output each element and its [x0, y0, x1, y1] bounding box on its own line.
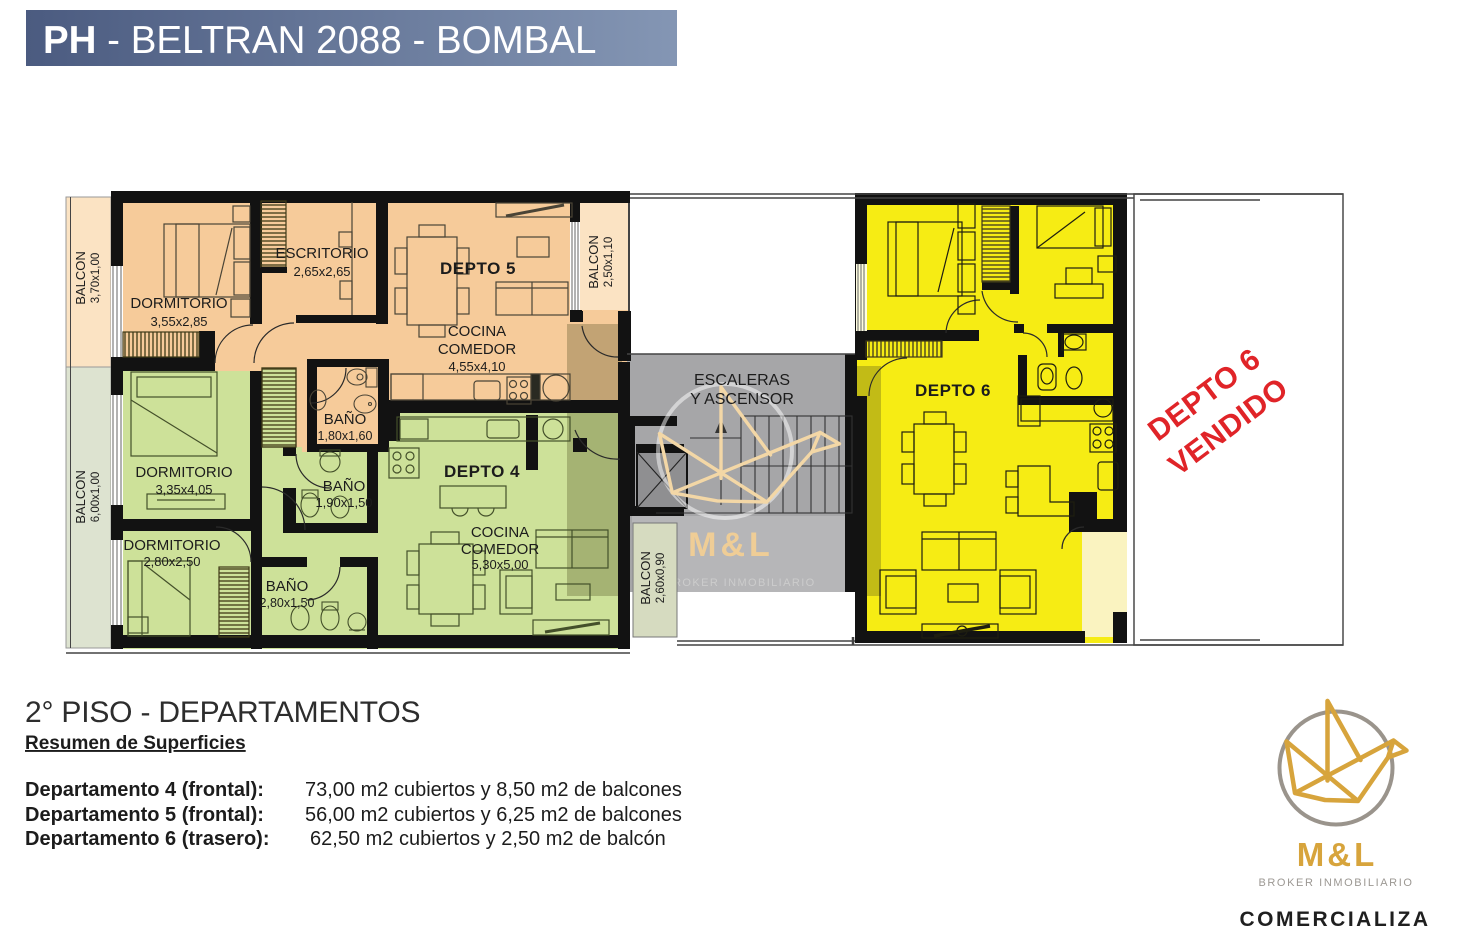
svg-text:M&L: M&L	[688, 526, 774, 564]
svg-text:DORMITORIO: DORMITORIO	[135, 464, 232, 481]
svg-text:6,00x1,00: 6,00x1,00	[90, 472, 102, 523]
svg-text:1,90x1,50: 1,90x1,50	[315, 495, 372, 510]
svg-text:DORMITORIO: DORMITORIO	[130, 295, 227, 312]
svg-text:62,50 m2 cubiertos y 2,50 m2 d: 62,50 m2 cubiertos y 2,50 m2 de balcón	[310, 828, 666, 850]
svg-text:COMEDOR: COMEDOR	[438, 341, 517, 358]
svg-text:M&L: M&L	[1297, 836, 1377, 873]
svg-text:Departamento 6 (trasero):: Departamento 6 (trasero):	[25, 828, 270, 850]
svg-text:PH - BELTRAN 2088 - BOMBAL: PH - BELTRAN 2088 - BOMBAL	[43, 19, 596, 62]
svg-text:COMERCIALIZA: COMERCIALIZA	[1240, 908, 1431, 931]
svg-text:56,00 m2 cubiertos y 6,25 m2 d: 56,00 m2 cubiertos y 6,25 m2 de balcones	[305, 804, 682, 826]
svg-text:ESCALERAS: ESCALERAS	[694, 372, 790, 389]
svg-text:2,50x1,10: 2,50x1,10	[603, 237, 615, 288]
svg-text:2,65x2,65: 2,65x2,65	[293, 264, 350, 279]
svg-text:COMEDOR: COMEDOR	[461, 541, 540, 558]
svg-text:DEPTO 4: DEPTO 4	[444, 462, 520, 481]
svg-text:DORMITORIO: DORMITORIO	[123, 537, 220, 554]
svg-text:BAÑO: BAÑO	[324, 411, 367, 428]
svg-text:BALCON: BALCON	[586, 235, 601, 288]
svg-text:3,55x2,85: 3,55x2,85	[150, 314, 207, 329]
svg-text:DEPTO 5: DEPTO 5	[440, 259, 516, 278]
svg-text:73,00 m2 cubiertos y 8,50 m2 d: 73,00 m2 cubiertos y 8,50 m2 de balcones	[305, 779, 682, 801]
svg-text:2,60x0,90: 2,60x0,90	[655, 553, 667, 604]
svg-text:Departamento 5 (frontal):: Departamento 5 (frontal):	[25, 804, 264, 826]
svg-text:ESCRITORIO: ESCRITORIO	[275, 245, 368, 262]
svg-text:2,80x1,50: 2,80x1,50	[260, 596, 315, 610]
svg-text:BALCON: BALCON	[638, 551, 653, 604]
svg-text:COCINA: COCINA	[448, 323, 506, 340]
svg-text:BALCON: BALCON	[73, 470, 88, 523]
svg-text:Departamento 4 (frontal):: Departamento 4 (frontal):	[25, 779, 264, 801]
svg-text:5,30x5,00: 5,30x5,00	[471, 557, 528, 572]
svg-text:BROKER INMOBILIARIO: BROKER INMOBILIARIO	[664, 577, 815, 589]
svg-text:BAÑO: BAÑO	[323, 478, 366, 495]
svg-text:3,70x1,00: 3,70x1,00	[90, 253, 102, 304]
svg-text:COCINA: COCINA	[471, 524, 529, 541]
svg-text:Resumen de Superficies: Resumen de Superficies	[25, 733, 246, 754]
svg-text:2° PISO - DEPARTAMENTOS: 2° PISO - DEPARTAMENTOS	[25, 696, 420, 729]
svg-text:4,55x4,10: 4,55x4,10	[448, 359, 505, 374]
svg-text:BALCON: BALCON	[73, 251, 88, 304]
svg-text:Y ASCENSOR: Y ASCENSOR	[690, 391, 794, 408]
svg-text:DEPTO 6: DEPTO 6	[915, 381, 991, 400]
svg-text:BAÑO: BAÑO	[266, 578, 309, 595]
svg-text:2,80x2,50: 2,80x2,50	[143, 554, 200, 569]
svg-text:1,80x1,60: 1,80x1,60	[318, 429, 373, 443]
svg-text:3,35x4,05: 3,35x4,05	[155, 482, 212, 497]
svg-text:BROKER INMOBILIARIO: BROKER INMOBILIARIO	[1258, 877, 1413, 889]
